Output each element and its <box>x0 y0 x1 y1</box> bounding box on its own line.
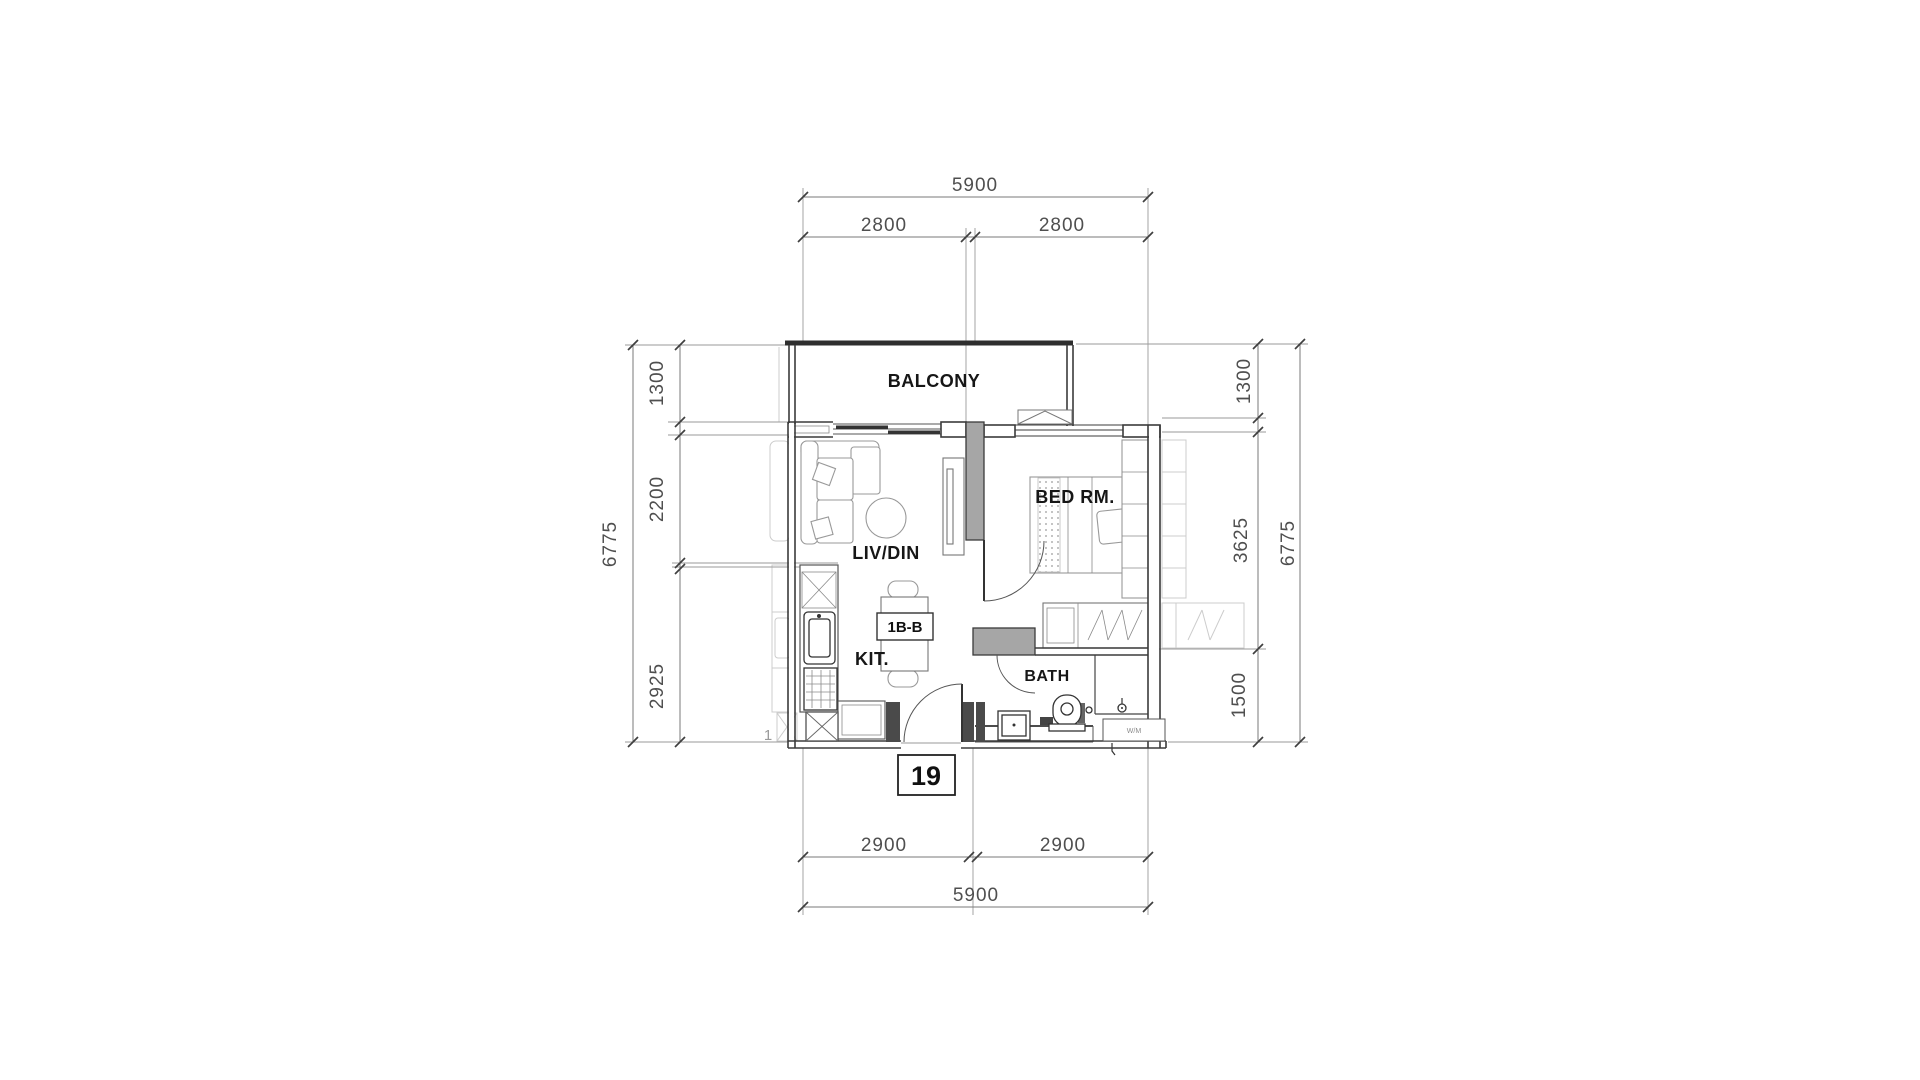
kitchen-sink <box>804 612 835 664</box>
bedroom-closet <box>1122 440 1148 598</box>
label-living-dining: LIV/DIN <box>852 543 920 563</box>
floor-plan-canvas: 1 5900 2800 2800 2900 <box>0 0 1920 1080</box>
label-kitchen: KIT. <box>855 649 889 669</box>
unit-number: 19 <box>911 761 941 791</box>
dim-left-living: 2200 <box>647 476 668 522</box>
floor-plan-drawing: 1 5900 2800 2800 2900 <box>0 0 1920 1080</box>
dim-left-total: 6775 <box>600 521 621 567</box>
label-bath: BATH <box>1024 668 1069 685</box>
adjacent-unit-partial-label: 1 <box>764 727 772 744</box>
dim-right-bath: 1500 <box>1229 672 1250 718</box>
label-balcony: BALCONY <box>888 371 981 391</box>
coffee-table <box>866 498 906 538</box>
stove <box>804 668 837 710</box>
floor-drain-mark <box>1112 743 1115 755</box>
dim-top-total: 5900 <box>952 175 998 196</box>
dim-bottom-left: 2900 <box>861 835 907 856</box>
dim-bottom-right: 2900 <box>1040 835 1086 856</box>
dim-right-bedroom: 3625 <box>1231 517 1252 563</box>
extension-lines <box>625 188 1308 915</box>
sofa <box>801 441 880 544</box>
dimension-lines <box>628 192 1305 912</box>
shear-wall-horizontal <box>973 628 1035 655</box>
dim-left-balcony: 1300 <box>647 360 668 406</box>
unit-type-tag: 1B-B <box>877 613 933 640</box>
dim-left-kitchen: 2925 <box>647 663 668 709</box>
tv-cabinet <box>943 458 964 555</box>
dim-right-total: 6775 <box>1278 520 1299 566</box>
shower <box>1095 655 1148 714</box>
dim-top-left: 2800 <box>861 215 907 236</box>
label-bedroom: BED RM. <box>1035 487 1115 507</box>
unit-number-tag: 19 <box>898 755 955 795</box>
washer-niche: W/M <box>1103 719 1165 741</box>
ac-condenser-unit <box>1018 410 1072 424</box>
dim-right-balcony: 1300 <box>1234 358 1255 404</box>
dim-bottom-total: 5900 <box>953 885 999 906</box>
entry-door <box>904 684 962 742</box>
bedroom-window <box>1015 425 1123 436</box>
entry-shoe-cabinet <box>838 701 885 739</box>
washer-label: W/M <box>1127 728 1142 735</box>
wardrobe <box>1043 603 1148 648</box>
balcony-sliding-door <box>833 424 941 434</box>
shaft-box <box>806 712 838 741</box>
unit-type-label: 1B-B <box>887 619 922 636</box>
shear-wall-vertical <box>966 422 984 540</box>
kitchen-counter <box>800 565 838 712</box>
toilet <box>1049 695 1085 731</box>
dim-top-right: 2800 <box>1039 215 1085 236</box>
